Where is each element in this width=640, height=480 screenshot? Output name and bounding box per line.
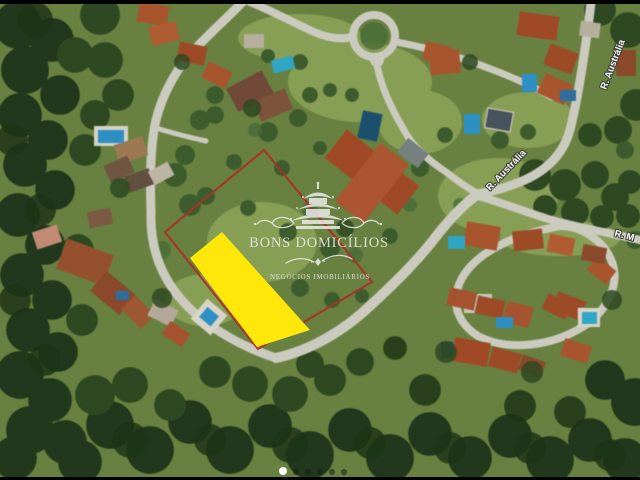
carousel-dot[interactable] [279,467,287,475]
listing-photo: R. Austrália R. Austrália R. M [0,0,640,480]
satellite-map: R. Austrália R. Austrália R. M [0,0,640,480]
brand-name: BONS DOMICÍLIOS [249,234,389,251]
carousel-dot[interactable] [305,469,311,475]
carousel-dot[interactable] [293,469,299,475]
brand-tagline: NEGÓCIOS IMOBILIÁRIOS [270,273,370,281]
carousel-dot[interactable] [317,469,323,475]
carousel-dot[interactable] [341,469,347,475]
carousel-dot[interactable] [329,469,335,475]
letterbox-top-bar [0,0,640,4]
